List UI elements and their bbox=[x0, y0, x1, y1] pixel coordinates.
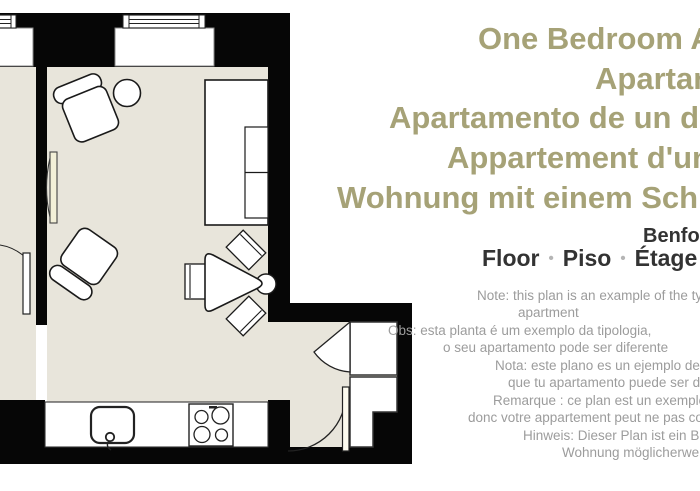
window-sill bbox=[0, 28, 33, 66]
title-line-es: Apartamento de un dormitorio bbox=[389, 101, 700, 135]
dining-chair bbox=[185, 264, 206, 299]
round-table-icon bbox=[114, 80, 141, 107]
note-line-en-2: apartment bbox=[518, 304, 579, 321]
burner bbox=[212, 407, 229, 424]
kitchen-counter bbox=[45, 402, 268, 447]
page: { "title": { "color": "#a6a277", "lines"… bbox=[0, 0, 700, 491]
bottom-wall bbox=[45, 447, 412, 464]
left-divider-wall bbox=[36, 67, 47, 325]
dot-separator: • bbox=[620, 250, 625, 267]
window-sill bbox=[115, 28, 214, 66]
floor-label-fr: Étage bbox=[635, 245, 698, 271]
note-line-de-2: Wohnung möglicherweise anders bbox=[562, 444, 700, 461]
note-line-es-1: Nota: este plano es un ejemplo de la tip… bbox=[495, 357, 700, 374]
kitchen bbox=[45, 402, 268, 450]
burner bbox=[195, 411, 208, 424]
dot-separator: • bbox=[549, 250, 554, 267]
floor-label-row: Floor•Piso•Étage bbox=[482, 245, 697, 272]
floor-label-en: Floor bbox=[482, 245, 540, 271]
note-line-fr-2: donc votre appartement peut ne pas corre… bbox=[468, 409, 700, 426]
window-icon bbox=[123, 15, 205, 28]
faucet-icon bbox=[106, 433, 114, 441]
note-line-fr-1: Remarque : ce plan est un exemple de la … bbox=[493, 392, 700, 409]
title-line-de: Wohnung mit einem Schlafzimmer bbox=[337, 181, 700, 215]
stove-control bbox=[209, 406, 217, 409]
note-line-es-2: que tu apartamento puede ser diferente bbox=[508, 374, 700, 391]
door-leaf bbox=[23, 253, 30, 314]
burner bbox=[216, 429, 228, 441]
door-leaf bbox=[343, 387, 350, 451]
title-line-fr: Appartement d'une chambre bbox=[447, 141, 700, 175]
title-line-en: One Bedroom Apartment bbox=[478, 22, 700, 56]
note-line-de-1: Hinweis: Dieser Plan ist ein Beispiel, bbox=[523, 427, 700, 444]
step-wall bbox=[373, 412, 397, 447]
note-line-pt-2: o seu apartamento pode ser diferente bbox=[443, 339, 668, 356]
title-line-pt: Apartamento bbox=[595, 62, 700, 96]
burner bbox=[194, 427, 210, 443]
window-frame-cap bbox=[11, 15, 16, 28]
window-frame-cap bbox=[199, 15, 205, 28]
note-line-pt-1: Obs: esta planta é um exemplo da tipolog… bbox=[388, 322, 651, 339]
floor-label-pt: Piso bbox=[563, 245, 612, 271]
hall-top-wall bbox=[268, 303, 412, 322]
sofa bbox=[205, 80, 268, 225]
note-line-en-1: Note: this plan is an example of the typ… bbox=[477, 287, 700, 304]
bottom-left-wall bbox=[0, 400, 45, 464]
window-frame-cap bbox=[123, 15, 129, 28]
side-room-floor bbox=[0, 67, 36, 400]
radiator-icon bbox=[50, 152, 57, 223]
counter-side-wall bbox=[268, 400, 290, 447]
